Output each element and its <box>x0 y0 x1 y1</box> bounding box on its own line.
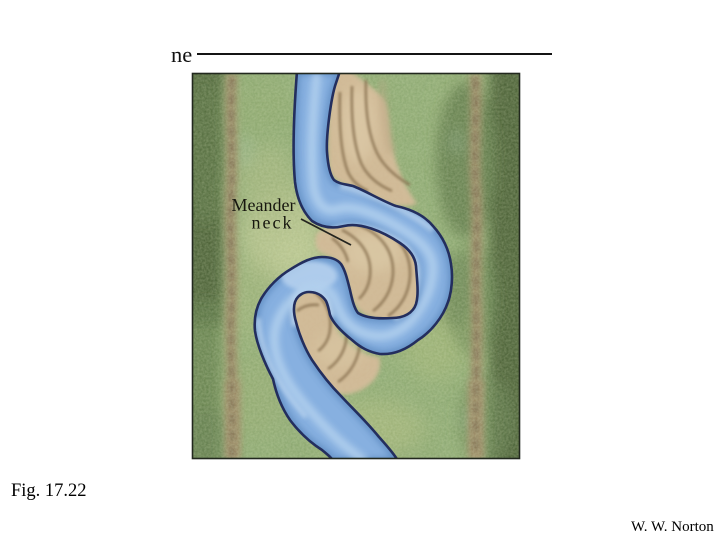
svg-text:neck: neck <box>252 213 294 233</box>
